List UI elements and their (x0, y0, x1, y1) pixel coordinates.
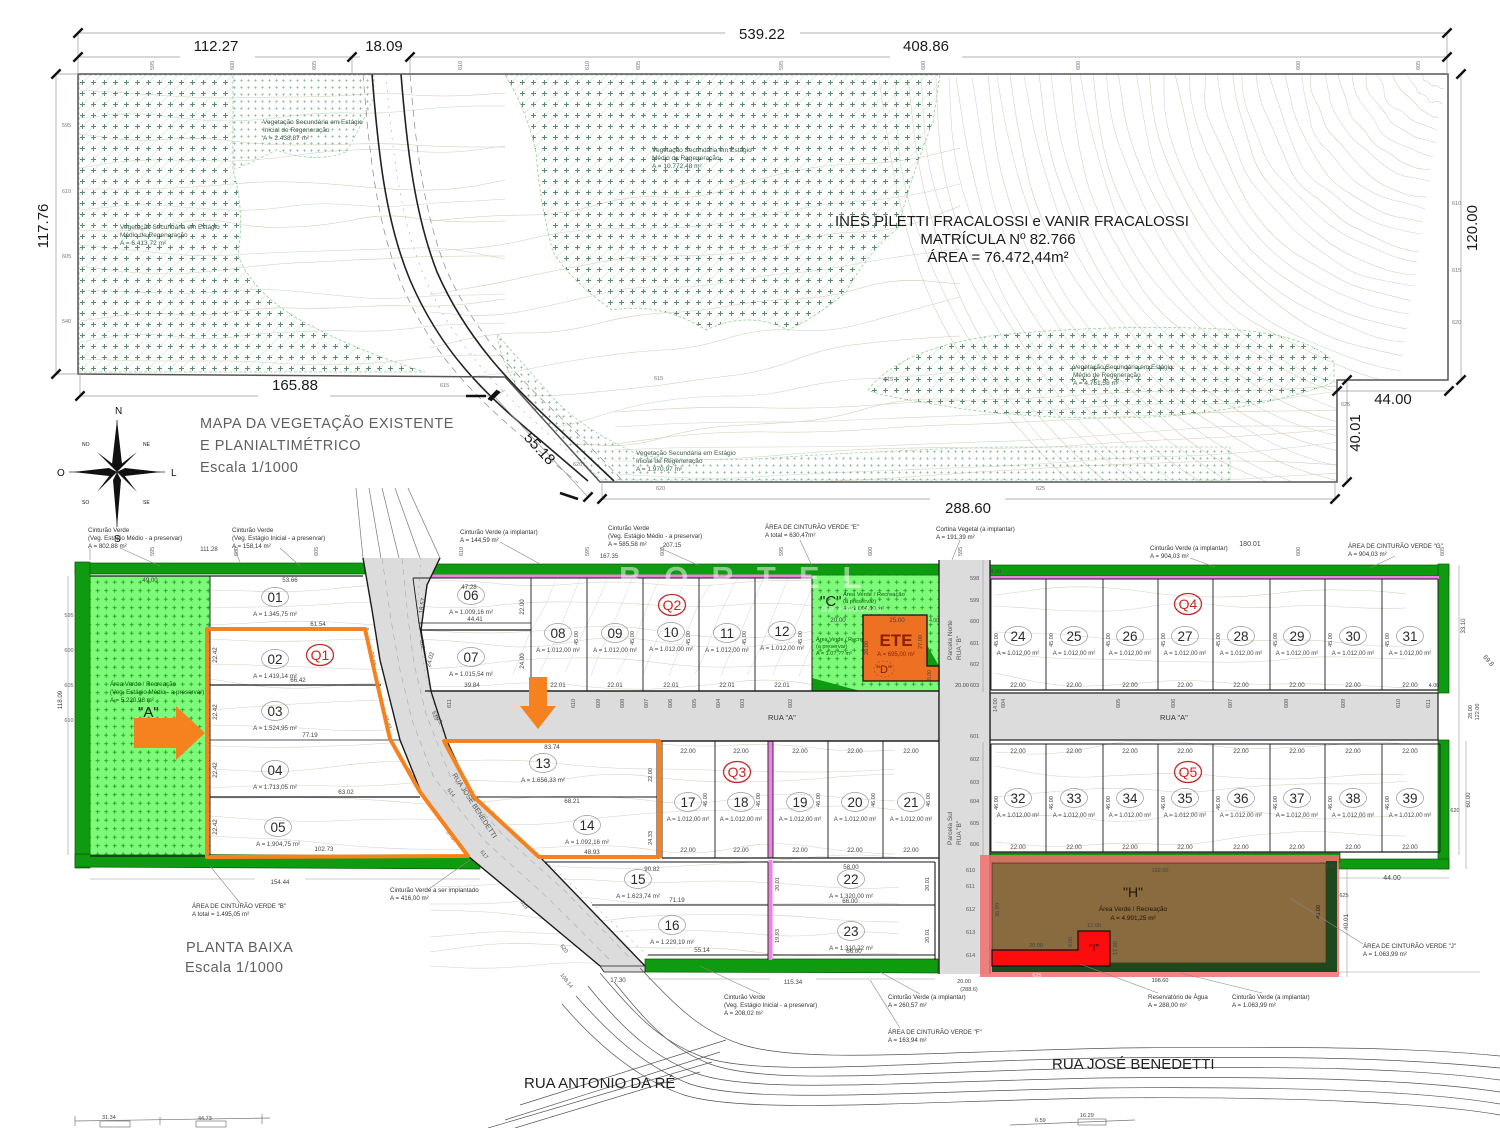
svg-text:Vegetação Secundária em Estági: Vegetação Secundária em Estágio (120, 224, 220, 231)
svg-text:45.00: 45.00 (1328, 633, 1334, 647)
svg-text:44.00: 44.00 (1383, 875, 1401, 882)
svg-text:122.00: 122.00 (1475, 704, 1481, 721)
svg-text:167.35: 167.35 (600, 554, 619, 560)
svg-text:48.93: 48.93 (584, 849, 600, 856)
svg-text:de imóveis: de imóveis (821, 604, 883, 615)
svg-text:22.00: 22.00 (1289, 844, 1305, 851)
svg-text:A = 4.761,58 m²: A = 4.761,58 m² (1073, 380, 1120, 387)
svg-text:16: 16 (664, 918, 679, 933)
svg-text:8.00: 8.00 (1068, 937, 1074, 947)
svg-text:45.00: 45.00 (798, 631, 804, 645)
svg-text:22.00: 22.00 (1345, 748, 1361, 755)
svg-text:(Veg. Estágio Inicial - a pres: (Veg. Estágio Inicial - a preservar) (724, 1002, 817, 1009)
svg-text:610: 610 (459, 547, 465, 556)
svg-text:198.60: 198.60 (1152, 978, 1169, 984)
svg-text:A = 1.970,97 m²: A = 1.970,97 m² (636, 466, 683, 473)
svg-text:02: 02 (267, 652, 282, 667)
svg-text:10: 10 (663, 625, 678, 640)
svg-text:22.00: 22.00 (1122, 844, 1138, 851)
svg-text:14: 14 (579, 818, 595, 833)
svg-text:154.44: 154.44 (271, 879, 290, 886)
svg-text:22.00: 22.00 (903, 847, 919, 854)
svg-text:NE: NE (143, 442, 151, 448)
svg-text:66.42: 66.42 (290, 677, 306, 684)
svg-text:22.00: 22.00 (1177, 682, 1193, 689)
svg-text:55.14: 55.14 (694, 947, 710, 954)
svg-text:22.00: 22.00 (1289, 748, 1305, 755)
svg-text:A = 288,00 m²: A = 288,00 m² (1148, 1002, 1187, 1009)
svg-text:A = 1.012,00 m²: A = 1.012,00 m² (536, 647, 580, 654)
svg-text:595: 595 (585, 547, 591, 556)
svg-text:A = 802,88 m²: A = 802,88 m² (88, 543, 127, 550)
svg-text:A total = 1.495,05 m²: A total = 1.495,05 m² (192, 911, 249, 918)
svg-text:615: 615 (654, 376, 663, 382)
svg-text:(288.6): (288.6) (960, 987, 978, 993)
svg-text:602: 602 (970, 662, 979, 668)
svg-text:605: 605 (970, 821, 979, 827)
svg-text:RUA "A": RUA "A" (768, 713, 796, 722)
svg-text:SO: SO (82, 500, 89, 506)
svg-text:595: 595 (779, 61, 785, 70)
svg-text:A = 1.009,16 m²: A = 1.009,16 m² (449, 609, 493, 616)
svg-text:605: 605 (312, 61, 318, 70)
svg-text:45.00: 45.00 (686, 631, 692, 645)
svg-text:598: 598 (970, 576, 979, 582)
svg-text:607: 607 (644, 699, 650, 708)
svg-text:12.00: 12.00 (1087, 923, 1101, 929)
svg-text:A = 1.524,95 m²: A = 1.524,95 m² (253, 725, 297, 732)
svg-text:609: 609 (1341, 699, 1347, 708)
svg-text:19.93: 19.93 (775, 929, 781, 943)
svg-text:A = 1.012,00 m²: A = 1.012,00 m² (593, 647, 637, 654)
svg-text:O: O (57, 468, 65, 479)
svg-text:36: 36 (1233, 791, 1248, 806)
svg-text:BORTEL: BORTEL (619, 560, 884, 595)
svg-text:A = 1.656,33 m²: A = 1.656,33 m² (521, 777, 565, 784)
svg-text:66.00: 66.00 (846, 948, 862, 955)
svg-text:Q4: Q4 (1179, 596, 1198, 612)
svg-text:615: 615 (884, 377, 893, 383)
svg-text:14.00: 14.00 (993, 698, 999, 712)
svg-text:604: 604 (970, 799, 979, 805)
svg-text:25: 25 (1066, 629, 1081, 644)
svg-text:SE: SE (143, 500, 150, 506)
svg-text:606: 606 (1171, 699, 1177, 708)
svg-text:20.00: 20.00 (1029, 943, 1043, 949)
svg-text:22.00: 22.00 (648, 768, 654, 782)
svg-text:A = 1.0?,?? m²: A = 1.0?,?? m² (816, 651, 852, 657)
svg-text:605: 605 (64, 683, 73, 689)
svg-text:22.00: 22.00 (1177, 748, 1193, 755)
svg-text:45.00: 45.00 (630, 631, 636, 645)
svg-text:22.00: 22.00 (1345, 844, 1361, 851)
svg-text:A = 1.012,00 m²: A = 1.012,00 m² (1220, 813, 1263, 819)
svg-text:4.00: 4.00 (991, 569, 1002, 575)
svg-text:A = 1.012,00 m²: A = 1.012,00 m² (667, 817, 710, 823)
svg-text:L: L (171, 468, 177, 479)
svg-text:604: 604 (1001, 699, 1007, 708)
svg-text:RUA ANTONIO DA RÉ: RUA ANTONIO DA RÉ (524, 1075, 675, 1092)
svg-text:Médio de Regeneração: Médio de Regeneração (1073, 372, 1141, 379)
svg-text:MATRÍCULA Nº 82.766: MATRÍCULA Nº 82.766 (920, 231, 1075, 248)
svg-text:111.28: 111.28 (200, 547, 218, 553)
svg-text:595: 595 (64, 613, 73, 619)
svg-text:22.00: 22.00 (1289, 682, 1305, 689)
svg-text:17: 17 (680, 795, 695, 810)
svg-text:607: 607 (1228, 699, 1234, 708)
svg-text:610: 610 (1396, 699, 1402, 708)
svg-text:83.74: 83.74 (544, 744, 560, 751)
svg-text:A = 1.092,16 m²: A = 1.092,16 m² (565, 839, 609, 846)
svg-text:620: 620 (1452, 320, 1461, 326)
svg-text:46.00: 46.00 (1106, 796, 1112, 810)
svg-text:180.01: 180.01 (1239, 541, 1261, 548)
svg-text:49.00: 49.00 (142, 577, 158, 584)
svg-text:34: 34 (1122, 791, 1138, 806)
svg-text:26: 26 (1122, 629, 1137, 644)
svg-text:NO: NO (82, 442, 90, 448)
svg-text:22.00: 22.00 (847, 748, 863, 755)
svg-text:A = 1.012,00 m²: A = 1.012,00 m² (779, 817, 822, 823)
svg-text:600: 600 (1296, 547, 1302, 556)
svg-text:Escala 1/1000: Escala 1/1000 (200, 460, 298, 476)
svg-text:33: 33 (1066, 791, 1081, 806)
svg-text:Parcela Norte: Parcela Norte (947, 620, 954, 660)
svg-text:22.01: 22.01 (774, 682, 790, 689)
svg-text:22.00: 22.00 (1177, 844, 1193, 851)
svg-text:600: 600 (1296, 61, 1302, 70)
svg-text:46.00: 46.00 (1328, 796, 1334, 810)
svg-text:625: 625 (1032, 973, 1041, 979)
svg-text:A = 4.991,25 m²: A = 4.991,25 m² (1110, 915, 1155, 922)
svg-text:22: 22 (843, 872, 858, 887)
svg-text:611: 611 (1426, 699, 1432, 708)
svg-text:A = 1.012,00 m²: A = 1.012,00 m² (1109, 651, 1152, 657)
svg-text:Reservatório de Água: Reservatório de Água (1148, 994, 1208, 1001)
svg-text:22.00: 22.00 (1010, 748, 1026, 755)
svg-text:58.00: 58.00 (843, 864, 859, 871)
svg-text:46.00: 46.00 (1049, 796, 1055, 810)
svg-text:22.01: 22.01 (663, 682, 679, 689)
svg-text:604: 604 (716, 699, 722, 708)
svg-text:600: 600 (230, 61, 236, 70)
svg-text:610: 610 (571, 699, 577, 708)
svg-text:600: 600 (64, 648, 73, 654)
svg-text:Cinturão Verde: Cinturão Verde (88, 527, 130, 534)
svg-text:A = 1.904,75 m²: A = 1.904,75 m² (256, 841, 300, 848)
svg-text:A = 1.012,00 m²: A = 1.012,00 m² (1332, 813, 1375, 819)
svg-text:07: 07 (463, 650, 478, 665)
svg-text:Q3: Q3 (728, 764, 747, 780)
svg-text:46.00: 46.00 (1273, 796, 1279, 810)
svg-text:45.00: 45.00 (1216, 633, 1222, 647)
svg-text:A = 260,57 m²: A = 260,57 m² (888, 1002, 927, 1009)
svg-text:605: 605 (1440, 547, 1446, 556)
svg-text:A = 208,02 m²: A = 208,02 m² (724, 1010, 763, 1017)
svg-text:RUA "A": RUA "A" (1160, 713, 1188, 722)
svg-text:603: 603 (740, 699, 746, 708)
svg-text:46.00: 46.00 (1161, 796, 1167, 810)
svg-text:4.00: 4.00 (1325, 864, 1335, 870)
svg-text:A = 904,03 m²: A = 904,03 m² (1348, 551, 1387, 558)
svg-text:600: 600 (868, 547, 874, 556)
svg-text:39.84: 39.84 (464, 682, 480, 689)
svg-text:22.00: 22.00 (1122, 748, 1138, 755)
svg-text:625: 625 (1341, 402, 1350, 408)
svg-text:16.29: 16.29 (1080, 1113, 1094, 1119)
svg-text:77.19: 77.19 (302, 732, 318, 739)
svg-text:24: 24 (1010, 629, 1026, 644)
svg-text:22.00: 22.00 (1233, 748, 1249, 755)
svg-text:606: 606 (668, 699, 674, 708)
svg-text:29: 29 (1289, 629, 1304, 644)
svg-text:Médio de Regeneração: Médio de Regeneração (652, 155, 720, 162)
svg-text:165.88: 165.88 (272, 377, 318, 394)
svg-text:Vegetação Secundária em Estági: Vegetação Secundária em Estágio (1073, 364, 1173, 371)
svg-text:60.00: 60.00 (1466, 792, 1472, 808)
svg-text:610: 610 (62, 189, 71, 195)
svg-text:46.00: 46.00 (703, 793, 709, 807)
svg-text:30: 30 (1345, 629, 1360, 644)
svg-text:4.00: 4.00 (929, 618, 939, 624)
svg-text:20.01: 20.01 (925, 877, 931, 891)
svg-text:A = 1.015,54 m²: A = 1.015,54 m² (449, 671, 493, 678)
svg-text:608: 608 (620, 699, 626, 708)
svg-text:A = 416,00 m²: A = 416,00 m² (390, 895, 429, 902)
svg-text:PLANTA BAIXA: PLANTA BAIXA (186, 940, 293, 956)
svg-text:605: 605 (636, 61, 642, 70)
svg-text:46.00: 46.00 (756, 793, 762, 807)
svg-text:609: 609 (596, 699, 602, 708)
svg-text:A = 1.012,00 m²: A = 1.012,00 m² (1332, 651, 1375, 657)
svg-text:611: 611 (966, 884, 975, 890)
svg-text:Q5: Q5 (1179, 764, 1198, 780)
svg-text:Cinturão Verde (a implantar): Cinturão Verde (a implantar) (1232, 994, 1310, 1001)
svg-text:09: 09 (607, 626, 622, 641)
svg-text:A = 1.063,99 m²: A = 1.063,99 m² (1363, 951, 1407, 958)
svg-text:31.34: 31.34 (102, 1115, 116, 1121)
svg-text:A = 10.772,48 m²: A = 10.772,48 m² (652, 163, 703, 170)
svg-text:A = 1.345,75 m²: A = 1.345,75 m² (253, 611, 297, 618)
svg-text:A = 1.012,00 m²: A = 1.012,00 m² (720, 817, 763, 823)
svg-text:610: 610 (585, 61, 591, 70)
svg-text:5.00: 5.00 (927, 670, 933, 680)
svg-text:22.00: 22.00 (1066, 682, 1082, 689)
svg-text:37: 37 (1289, 791, 1304, 806)
svg-text:615: 615 (440, 383, 449, 389)
svg-text:A = 1.229,19 m²: A = 1.229,19 m² (650, 939, 694, 946)
svg-text:ÁREA DE CINTURÃO VERDE "F": ÁREA DE CINTURÃO VERDE "F" (888, 1029, 982, 1036)
svg-text:Cinturão Verde: Cinturão Verde (724, 994, 766, 1001)
svg-text:22.01: 22.01 (607, 682, 623, 689)
svg-text:24.33: 24.33 (648, 831, 654, 845)
svg-text:MAPA DA VEGETAÇÃO EXISTENTE: MAPA DA VEGETAÇÃO EXISTENTE (200, 415, 454, 432)
svg-text:26.00: 26.00 (864, 641, 870, 655)
svg-text:05: 05 (270, 820, 285, 835)
svg-text:6.59: 6.59 (1035, 1118, 1046, 1124)
svg-text:A = 1.012,00 m²: A = 1.012,00 m² (1164, 813, 1207, 819)
svg-text:620: 620 (1450, 808, 1459, 814)
svg-text:27: 27 (1177, 629, 1192, 644)
svg-text:40.01: 40.01 (1347, 414, 1364, 452)
svg-text:19: 19 (792, 795, 807, 810)
svg-text:A = 1.012,00 m²: A = 1.012,00 m² (997, 651, 1040, 657)
svg-text:606: 606 (970, 842, 979, 848)
svg-text:22.00: 22.00 (733, 847, 749, 854)
svg-text:A = 1.012,00 m²: A = 1.012,00 m² (1389, 651, 1432, 657)
svg-text:46.00: 46.00 (1385, 796, 1391, 810)
svg-text:603: 603 (970, 683, 979, 689)
svg-text:Cinturão Verde (a implantar): Cinturão Verde (a implantar) (460, 529, 538, 536)
svg-text:615: 615 (1452, 268, 1461, 274)
svg-text:Inicial de Regeneração: Inicial de Regeneração (263, 127, 330, 134)
svg-text:Vegetação Secundária em Estági: Vegetação Secundária em Estágio (652, 147, 752, 154)
svg-text:35.90: 35.90 (995, 903, 1001, 917)
svg-text:Cinturão Verde: Cinturão Verde (232, 527, 274, 534)
svg-text:22.00: 22.00 (1402, 748, 1418, 755)
svg-text:22.00: 22.00 (1402, 844, 1418, 851)
svg-text:600: 600 (1076, 61, 1082, 70)
svg-text:63.02: 63.02 (338, 789, 354, 796)
svg-text:ÁREA DE CINTURÃO VERDE "B": ÁREA DE CINTURÃO VERDE "B" (192, 903, 286, 910)
svg-text:45.00: 45.00 (574, 631, 580, 645)
svg-text:22.00: 22.00 (519, 599, 526, 615)
svg-text:46.00: 46.00 (871, 793, 877, 807)
svg-text:46.00: 46.00 (816, 793, 822, 807)
svg-text:44.00: 44.00 (1374, 391, 1412, 408)
svg-text:38: 38 (1345, 791, 1360, 806)
svg-text:22.42: 22.42 (212, 762, 219, 778)
svg-text:408.86: 408.86 (903, 38, 949, 55)
svg-text:40.01: 40.01 (1343, 913, 1350, 930)
svg-text:4.00: 4.00 (1429, 683, 1440, 689)
svg-text:605: 605 (314, 547, 320, 556)
svg-text:22.00: 22.00 (1233, 682, 1249, 689)
svg-text:605: 605 (1116, 699, 1122, 708)
svg-text:605: 605 (692, 699, 698, 708)
svg-text:22.00: 22.00 (1010, 682, 1026, 689)
svg-text:"H": "H" (1123, 884, 1143, 900)
svg-text:601: 601 (970, 734, 979, 740)
svg-text:23: 23 (843, 924, 858, 939)
svg-text:24.00: 24.00 (519, 653, 526, 669)
svg-text:595: 595 (958, 547, 964, 556)
svg-text:611: 611 (447, 699, 453, 708)
svg-text:540: 540 (62, 319, 71, 325)
svg-text:Cinturão Verde (a implantar): Cinturão Verde (a implantar) (1150, 545, 1228, 552)
svg-text:610: 610 (64, 718, 73, 724)
svg-text:Vegetação Secundária em Estági: Vegetação Secundária em Estágio (263, 119, 363, 126)
svg-text:04: 04 (267, 763, 283, 778)
svg-text:22.01: 22.01 (719, 682, 735, 689)
svg-text:22.01: 22.01 (550, 682, 566, 689)
svg-text:13: 13 (535, 756, 550, 771)
svg-text:46.00: 46.00 (926, 793, 932, 807)
svg-text:115.34: 115.34 (784, 979, 803, 986)
svg-text:102.73: 102.73 (315, 846, 334, 853)
svg-text:32: 32 (1010, 791, 1025, 806)
svg-text:71.19: 71.19 (669, 897, 685, 904)
svg-text:22.00: 22.00 (792, 847, 808, 854)
svg-text:N: N (115, 406, 122, 417)
svg-text:22.00: 22.00 (1233, 844, 1249, 851)
svg-text:ÁREA DE CINTURÃO VERDE "E": ÁREA DE CINTURÃO VERDE "E" (765, 524, 859, 531)
svg-text:610: 610 (966, 868, 975, 874)
svg-text:602: 602 (788, 699, 794, 708)
svg-text:A = 1.012,00 m²: A = 1.012,00 m² (1276, 651, 1319, 657)
svg-text:20.00: 20.00 (830, 617, 846, 624)
svg-text:112.27: 112.27 (194, 38, 239, 55)
svg-text:"D": "D" (876, 664, 892, 676)
svg-text:RUA JOSÉ BENEDETTI: RUA JOSÉ BENEDETTI (1052, 1056, 1215, 1073)
svg-text:A = 1.012,00 m²: A = 1.012,00 m² (705, 647, 749, 654)
svg-text:600: 600 (921, 61, 927, 70)
svg-text:68.21: 68.21 (564, 798, 580, 805)
svg-text:"I": "I" (1089, 943, 1099, 954)
svg-text:E PLANIALTIMÉTRICO: E PLANIALTIMÉTRICO (200, 437, 361, 454)
svg-text:A = 191,39 m²: A = 191,39 m² (936, 534, 975, 541)
svg-text:ETE: ETE (879, 631, 912, 650)
svg-text:45.00: 45.00 (1161, 633, 1167, 647)
svg-text:A = 1.012,00 m²: A = 1.012,00 m² (649, 646, 693, 653)
svg-text:192.00: 192.00 (1152, 868, 1169, 874)
svg-text:595: 595 (150, 547, 156, 556)
svg-text:(Veg. Estágio Médio - a preser: (Veg. Estágio Médio - a preservar) (110, 689, 204, 696)
svg-text:Cortina Vegetal (a implantar): Cortina Vegetal (a implantar) (936, 526, 1015, 533)
svg-text:22.00: 22.00 (903, 748, 919, 755)
svg-text:605: 605 (62, 254, 71, 260)
svg-text:45.00: 45.00 (1385, 633, 1391, 647)
svg-text:22.00: 22.00 (1402, 682, 1418, 689)
svg-text:612: 612 (966, 907, 975, 913)
svg-text:22.42: 22.42 (212, 704, 219, 720)
svg-text:610: 610 (458, 61, 464, 70)
svg-text:Médio de Regeneração: Médio de Regeneração (120, 232, 188, 239)
svg-text:RUA "B": RUA "B" (956, 820, 963, 845)
svg-text:01: 01 (267, 590, 282, 605)
svg-text:A = 1.012,00 m²: A = 1.012,00 m² (1276, 813, 1319, 819)
svg-text:46.00: 46.00 (1216, 796, 1222, 810)
svg-text:45.00: 45.00 (742, 631, 748, 645)
svg-text:603: 603 (970, 780, 979, 786)
svg-text:595: 595 (150, 61, 156, 70)
svg-text:20: 20 (847, 795, 862, 810)
svg-text:31: 31 (1402, 629, 1417, 644)
svg-text:620: 620 (573, 462, 582, 468)
svg-text:118.09: 118.09 (57, 690, 64, 709)
svg-text:A = 1.012,00 m²: A = 1.012,00 m² (1164, 651, 1207, 657)
svg-text:33.10: 33.10 (1461, 618, 1467, 634)
svg-text:(Veg. Estágio Médio - a preser: (Veg. Estágio Médio - a preservar) (88, 535, 182, 542)
svg-text:90.82: 90.82 (644, 866, 660, 873)
svg-text:ÁREA DE CINTURÃO VERDE "J": ÁREA DE CINTURÃO VERDE "J" (1363, 943, 1456, 950)
svg-text:601: 601 (970, 641, 979, 647)
svg-text:Inicial de Regeneração: Inicial de Regeneração (636, 458, 703, 465)
svg-text:45.00: 45.00 (1106, 633, 1112, 647)
svg-text:A = 1.623,74 m²: A = 1.623,74 m² (616, 893, 660, 900)
svg-text:Cinturão Verde a ser implantad: Cinturão Verde a ser implantado (390, 887, 479, 894)
svg-text:610: 610 (1452, 201, 1461, 207)
svg-text:A = 1.063,99 m²: A = 1.063,99 m² (1232, 1002, 1276, 1009)
svg-text:RUA "B": RUA "B" (956, 635, 963, 660)
svg-text:602: 602 (970, 757, 979, 763)
svg-text:46.00: 46.00 (994, 796, 1000, 810)
svg-text:20.00: 20.00 (955, 683, 969, 689)
svg-text:A = 1.713,05 m²: A = 1.713,05 m² (253, 784, 297, 791)
svg-text:18.09: 18.09 (365, 38, 403, 55)
svg-text:22.00: 22.00 (1122, 682, 1138, 689)
svg-text:Área Verde / Recreação: Área Verde / Recreação (1099, 904, 1168, 913)
